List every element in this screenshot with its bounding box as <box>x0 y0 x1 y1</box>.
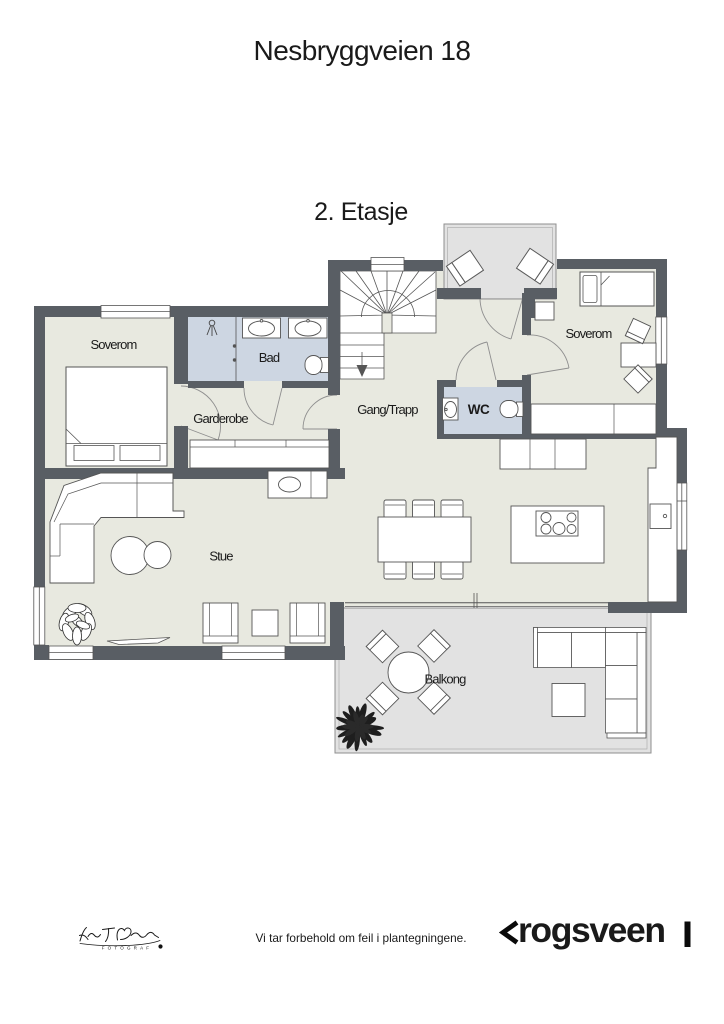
svg-text:Gang/Trapp: Gang/Trapp <box>357 402 418 417</box>
svg-text:FOTOGRAF: FOTOGRAF <box>102 946 153 951</box>
svg-text:2. Etasje: 2. Etasje <box>314 198 408 226</box>
svg-text:Garderobe: Garderobe <box>193 411 248 426</box>
svg-text:Stue: Stue <box>209 549 233 564</box>
svg-text:Balkong: Balkong <box>424 672 466 687</box>
svg-text:Bad: Bad <box>259 350 280 365</box>
svg-text:rogsveen: rogsveen <box>518 910 665 950</box>
svg-text:Vi tar forbehold om feil i pla: Vi tar forbehold om feil i plantegningen… <box>256 931 467 945</box>
svg-text:WC: WC <box>468 402 490 417</box>
svg-text:Soverom: Soverom <box>565 326 611 341</box>
svg-text:Soverom: Soverom <box>90 337 136 352</box>
svg-text:Nesbryggveien 18: Nesbryggveien 18 <box>254 35 471 66</box>
